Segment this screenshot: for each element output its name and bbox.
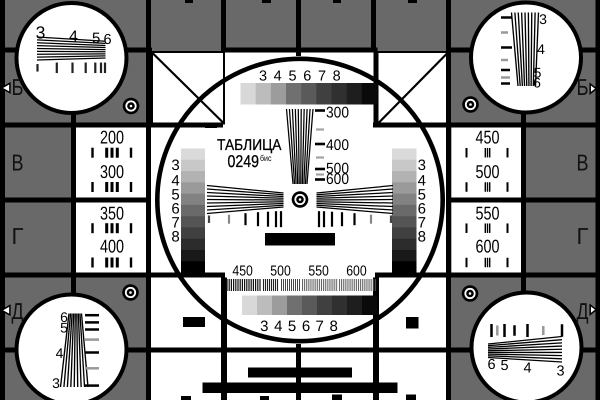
svg-text:4: 4 bbox=[56, 345, 64, 361]
svg-text:400: 400 bbox=[326, 137, 349, 154]
svg-text:5: 5 bbox=[60, 320, 68, 336]
svg-text:Г: Г bbox=[577, 223, 590, 249]
svg-text:Б: Б bbox=[12, 74, 24, 100]
svg-text:6: 6 bbox=[303, 69, 311, 85]
svg-text:6: 6 bbox=[103, 32, 111, 48]
svg-text:3: 3 bbox=[36, 23, 46, 43]
svg-text:4: 4 bbox=[69, 28, 78, 45]
svg-text:6: 6 bbox=[302, 318, 310, 335]
svg-text:бис: бис bbox=[260, 153, 272, 163]
svg-text:550: 550 bbox=[308, 264, 329, 280]
svg-text:3: 3 bbox=[418, 157, 426, 174]
svg-text:450: 450 bbox=[232, 264, 253, 280]
svg-text:400: 400 bbox=[100, 236, 124, 257]
svg-text:450: 450 bbox=[476, 127, 500, 148]
svg-text:5: 5 bbox=[500, 358, 508, 374]
svg-text:Б: Б bbox=[577, 74, 589, 100]
svg-text:6: 6 bbox=[487, 357, 495, 373]
svg-text:В: В bbox=[12, 150, 24, 176]
svg-text:200: 200 bbox=[100, 127, 124, 148]
svg-text:4: 4 bbox=[274, 69, 282, 85]
svg-text:3: 3 bbox=[52, 375, 60, 391]
svg-text:7: 7 bbox=[316, 318, 324, 335]
svg-text:4: 4 bbox=[274, 318, 282, 335]
svg-text:5: 5 bbox=[92, 30, 100, 47]
svg-text:300: 300 bbox=[326, 105, 349, 122]
svg-text:8: 8 bbox=[418, 228, 426, 245]
svg-text:8: 8 bbox=[171, 228, 179, 245]
svg-text:3: 3 bbox=[539, 11, 547, 27]
svg-text:В: В bbox=[577, 150, 589, 176]
svg-text:3: 3 bbox=[556, 364, 564, 380]
svg-text:Д: Д bbox=[577, 298, 589, 324]
svg-text:0249: 0249 bbox=[228, 152, 260, 171]
svg-text:300: 300 bbox=[100, 161, 124, 182]
svg-text:8: 8 bbox=[330, 318, 338, 335]
svg-text:600: 600 bbox=[326, 171, 349, 188]
svg-text:8: 8 bbox=[333, 69, 341, 85]
svg-text:Д: Д bbox=[12, 298, 24, 324]
svg-text:6: 6 bbox=[533, 75, 541, 91]
svg-text:Г: Г bbox=[12, 223, 25, 249]
svg-text:500: 500 bbox=[270, 264, 291, 280]
svg-text:350: 350 bbox=[100, 203, 124, 224]
svg-text:5: 5 bbox=[288, 318, 296, 335]
svg-text:600: 600 bbox=[476, 236, 500, 257]
svg-text:4: 4 bbox=[537, 41, 545, 57]
svg-text:3: 3 bbox=[171, 157, 179, 174]
svg-text:500: 500 bbox=[476, 161, 500, 182]
svg-text:550: 550 bbox=[476, 203, 500, 224]
svg-text:3: 3 bbox=[260, 318, 268, 335]
svg-text:3: 3 bbox=[259, 69, 267, 85]
svg-text:4: 4 bbox=[523, 361, 531, 377]
svg-text:5: 5 bbox=[288, 69, 296, 85]
svg-text:600: 600 bbox=[346, 264, 367, 280]
svg-text:7: 7 bbox=[318, 69, 326, 85]
